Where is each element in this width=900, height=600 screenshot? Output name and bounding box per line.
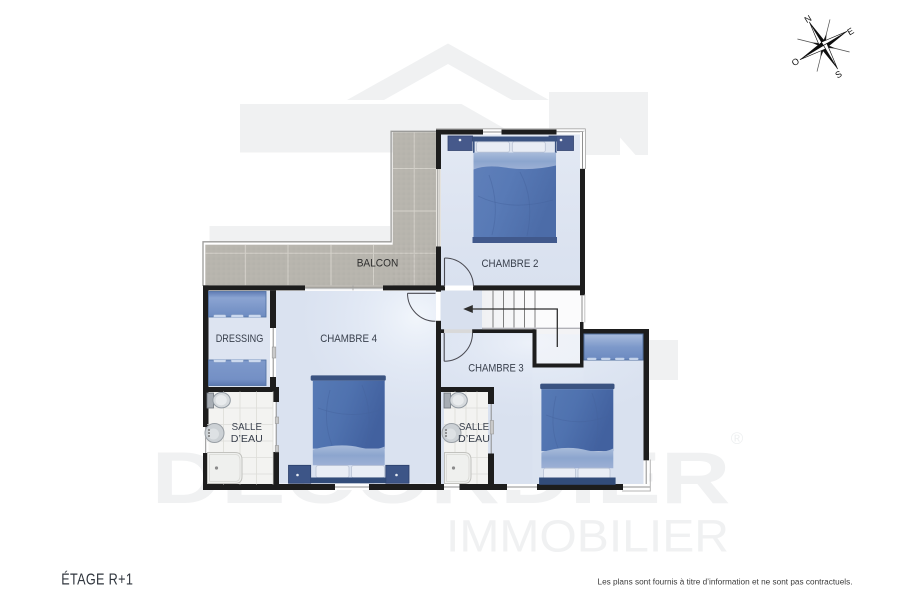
svg-text:D’EAU: D’EAU — [231, 434, 263, 445]
svg-text:BALCON: BALCON — [357, 257, 399, 269]
svg-text:D’EAU: D’EAU — [458, 434, 490, 445]
svg-text:N: N — [803, 13, 814, 25]
svg-text:CHAMBRE 2: CHAMBRE 2 — [482, 258, 539, 270]
svg-text:DRESSING: DRESSING — [216, 333, 264, 345]
svg-text:O: O — [790, 56, 801, 68]
svg-text:IMMOBILIER: IMMOBILIER — [446, 511, 729, 562]
svg-text:CHAMBRE 3: CHAMBRE 3 — [468, 362, 523, 374]
svg-text:ÉTAGE R+1: ÉTAGE R+1 — [61, 572, 133, 589]
svg-text:E: E — [845, 26, 855, 38]
svg-text:CHAMBRE 4: CHAMBRE 4 — [320, 333, 377, 345]
svg-text:Les plans sont fournis à titre: Les plans sont fournis à titre d’informa… — [598, 577, 853, 587]
svg-text:SALLE: SALLE — [459, 422, 489, 433]
svg-text:®: ® — [731, 429, 744, 448]
svg-text:SALLE: SALLE — [232, 422, 262, 433]
svg-text:S: S — [833, 69, 843, 81]
